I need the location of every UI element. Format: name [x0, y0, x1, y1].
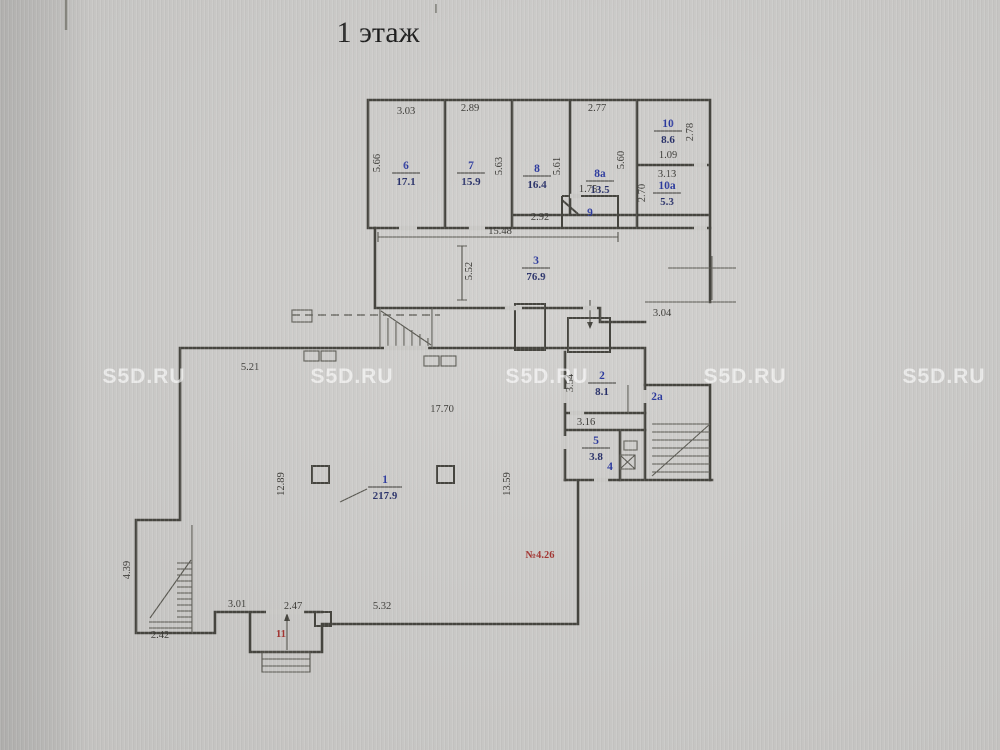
dim-top-w10b: 1.09: [659, 150, 677, 161]
room-3-number: 3: [533, 255, 539, 267]
floorplan-svg: 6 17.1 7 15.9 8 16.4 8а 13.5 9 10 8.6 10…: [0, 0, 1000, 750]
room-10a-area: 5.3: [660, 196, 674, 208]
room-2-area: 8.1: [595, 386, 609, 398]
dim-top-h6: 5.66: [372, 154, 383, 172]
dim-top-total: 15.48: [488, 226, 512, 237]
dim-top-w9: 1.75: [579, 184, 597, 195]
dim-main-b532: 5.32: [373, 601, 391, 612]
stair-2a-treads: [652, 424, 710, 476]
main-block-outline: [136, 348, 712, 652]
room-10-area: 8.6: [661, 134, 675, 146]
column-1: [312, 466, 329, 483]
room-1-number: 1: [382, 474, 388, 486]
dim-main-b242: 2.42: [151, 630, 169, 641]
stair-room3-hatch: [380, 308, 432, 348]
dim-main-top: 5.21: [241, 362, 259, 373]
room-2-number: 2: [599, 370, 605, 382]
room-8-number: 8: [534, 163, 540, 175]
wall-fixtures: [304, 351, 456, 366]
room-7-number: 7: [468, 160, 474, 172]
dim-main-right: 13.59: [502, 472, 513, 496]
dim-top-w8a: 2.77: [588, 103, 606, 114]
room-3-area: 76.9: [526, 271, 546, 283]
room-5-number: 5: [593, 435, 599, 447]
room-8a-number: 8а: [594, 168, 606, 180]
room-8-area: 16.4: [527, 179, 547, 191]
dim-main-left2: 4.39: [122, 561, 133, 579]
dim-mid-r3: 3.04: [653, 308, 672, 319]
measure-lines: [378, 232, 618, 300]
dim-top-h8: 5.61: [552, 157, 563, 175]
room-1-area: 217.9: [373, 490, 398, 502]
watermark-4: S5D.RU: [703, 365, 786, 388]
dim-main-c316: 3.16: [577, 417, 595, 428]
red-note: №4.26: [526, 550, 555, 561]
dim-top-w10a: 3.13: [658, 169, 676, 180]
room-4-number: 4: [607, 461, 613, 473]
dim-main-left: 12.89: [276, 472, 287, 496]
watermark-2: S5D.RU: [310, 365, 393, 388]
column-2: [437, 466, 454, 483]
room-10-number: 10: [662, 118, 674, 130]
entry-arrowhead: [587, 322, 593, 329]
dim-mid-h3: 5.52: [464, 262, 475, 280]
dim-top-h8a: 5.60: [616, 151, 627, 169]
entrance-steps: [262, 614, 310, 672]
dim-main-b301: 3.01: [228, 599, 246, 610]
sw-stair-hatch: [149, 525, 192, 633]
watermarks: S5D.RU S5D.RU S5D.RU S5D.RU S5D.RU: [102, 365, 985, 388]
shaft-box: [515, 304, 545, 350]
room-6-number: 6: [403, 160, 409, 172]
room-5-area: 3.8: [589, 451, 603, 463]
room3-extension-lines: [645, 256, 736, 302]
watermark-1: S5D.RU: [102, 365, 185, 388]
page-title: 1 этаж: [337, 16, 420, 49]
mezzanine-box: [292, 310, 312, 322]
walls: [136, 100, 736, 652]
dim-top-w7: 2.89: [461, 103, 479, 114]
room-1-leader-line: [340, 489, 367, 502]
floorplan-page: 6 17.1 7 15.9 8 16.4 8а 13.5 9 10 8.6 10…: [0, 0, 1000, 750]
dim-top-h10a: 2.70: [637, 184, 648, 202]
room-2a-number: 2а: [651, 391, 663, 403]
dim-main-w1: 17.70: [430, 404, 454, 415]
dim-top-h10: 2.78: [685, 123, 696, 141]
room-6-area: 17.1: [396, 176, 415, 188]
dim-main-b247: 2.47: [284, 601, 302, 612]
door-openings: [266, 165, 707, 612]
room-10a-number: 10а: [658, 180, 676, 192]
dim-top-w6: 3.03: [397, 106, 415, 117]
room-11-number: 11: [276, 629, 286, 640]
watermark-5: S5D.RU: [902, 365, 985, 388]
room-7-area: 15.9: [461, 176, 481, 188]
room-9-number: 9: [587, 207, 593, 219]
toilet-icon: [620, 441, 637, 469]
dim-top-h7: 5.63: [494, 157, 505, 175]
watermark-3: S5D.RU: [505, 365, 588, 388]
dim-top-corr: 2.92: [531, 212, 549, 223]
